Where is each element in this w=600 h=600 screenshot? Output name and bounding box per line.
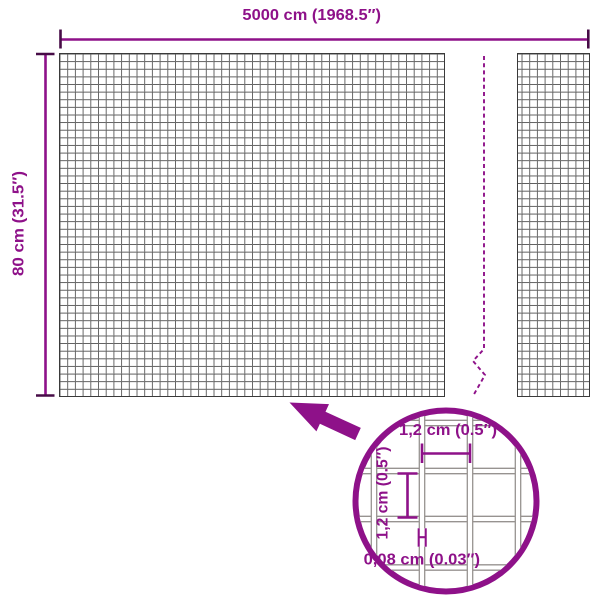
svg-text:80 cm (31.5″): 80 cm (31.5″) <box>11 171 28 276</box>
svg-text:1,2 cm (0.5″): 1,2 cm (0.5″) <box>399 422 497 439</box>
svg-text:5000 cm (1968.5″): 5000 cm (1968.5″) <box>242 7 381 24</box>
svg-text:1,2 cm (0.5″): 1,2 cm (0.5″) <box>375 447 392 540</box>
svg-text:0,08 cm (0.03″): 0,08 cm (0.03″) <box>364 551 480 568</box>
